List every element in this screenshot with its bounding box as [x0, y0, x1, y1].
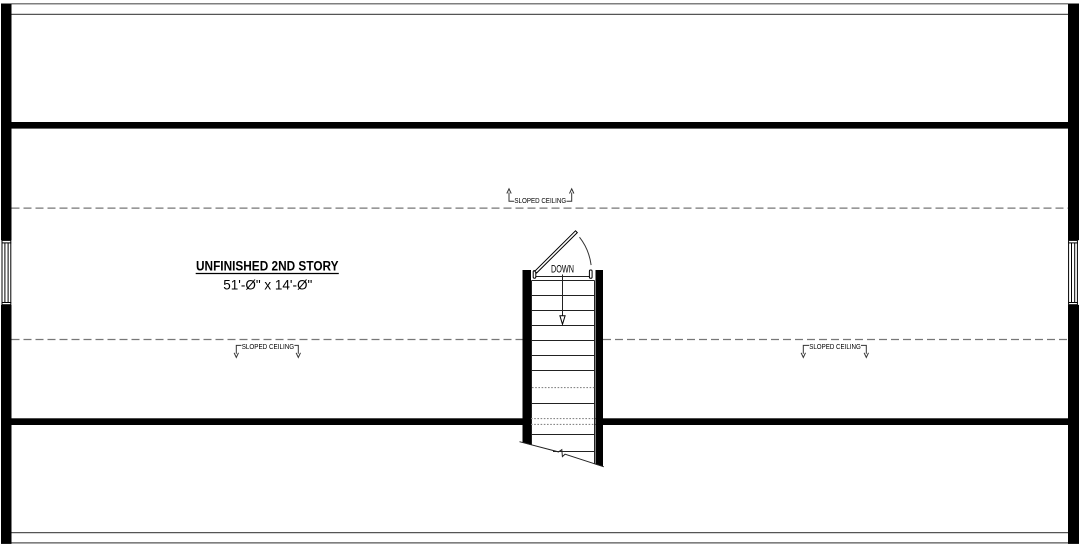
svg-text:SLOPED CEILING: SLOPED CEILING [242, 344, 295, 351]
svg-text:DOWN: DOWN [551, 263, 574, 275]
svg-text:UNFINISHED 2ND STORY: UNFINISHED 2ND STORY [196, 259, 339, 274]
svg-text:SLOPED CEILING: SLOPED CEILING [514, 198, 566, 205]
svg-text:51'-Ø" x 14'-Ø": 51'-Ø" x 14'-Ø" [223, 276, 312, 292]
svg-text:SLOPED CEILING: SLOPED CEILING [809, 344, 861, 351]
